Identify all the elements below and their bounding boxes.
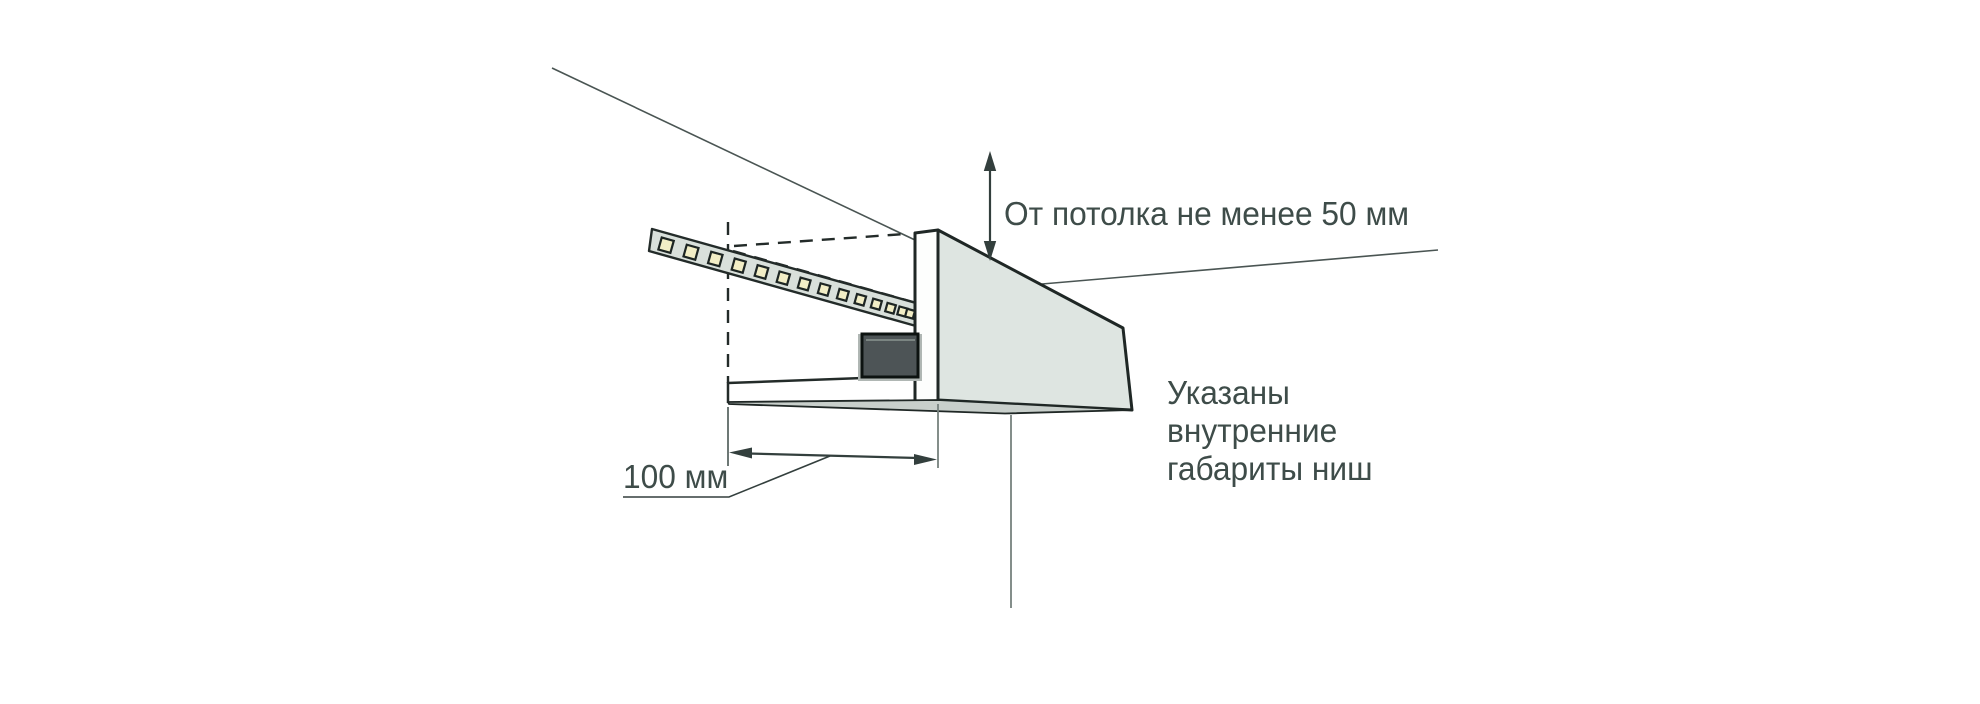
led-chip: [708, 252, 723, 267]
niche-dimensions-note: Указаны внутренние габариты ниш: [1167, 374, 1373, 488]
led-chip: [798, 278, 811, 291]
ceiling-line-left: [552, 68, 915, 240]
led-chip: [855, 294, 867, 306]
niche-side-face: [938, 230, 1132, 410]
led-chip: [818, 283, 830, 295]
ceiling-line-right: [1042, 250, 1438, 284]
led-chip: [683, 245, 698, 260]
clearance-arrow-up: [984, 151, 996, 171]
led-chip: [777, 271, 790, 284]
led-chips-group: [658, 237, 915, 318]
led-chip: [837, 289, 849, 301]
width-arrow-right: [914, 454, 937, 465]
led-chip: [905, 309, 915, 319]
ceiling-clearance-label: От потолка не менее 50 мм: [1004, 195, 1409, 233]
width-arrow-left: [729, 448, 752, 459]
hidden-edge-top: [734, 234, 905, 246]
led-chip: [732, 259, 746, 273]
led-chip: [871, 299, 882, 310]
width-dimension-label: 100 мм: [623, 458, 728, 496]
led-chip: [755, 265, 769, 279]
led-chip: [885, 303, 896, 314]
niche-installation-diagram-page: От потолка не менее 50 мм Указаны внутре…: [0, 0, 1980, 704]
led-chip: [658, 237, 673, 252]
width-dimension-line: [748, 454, 918, 459]
niche-installation-diagram: [0, 0, 1980, 704]
